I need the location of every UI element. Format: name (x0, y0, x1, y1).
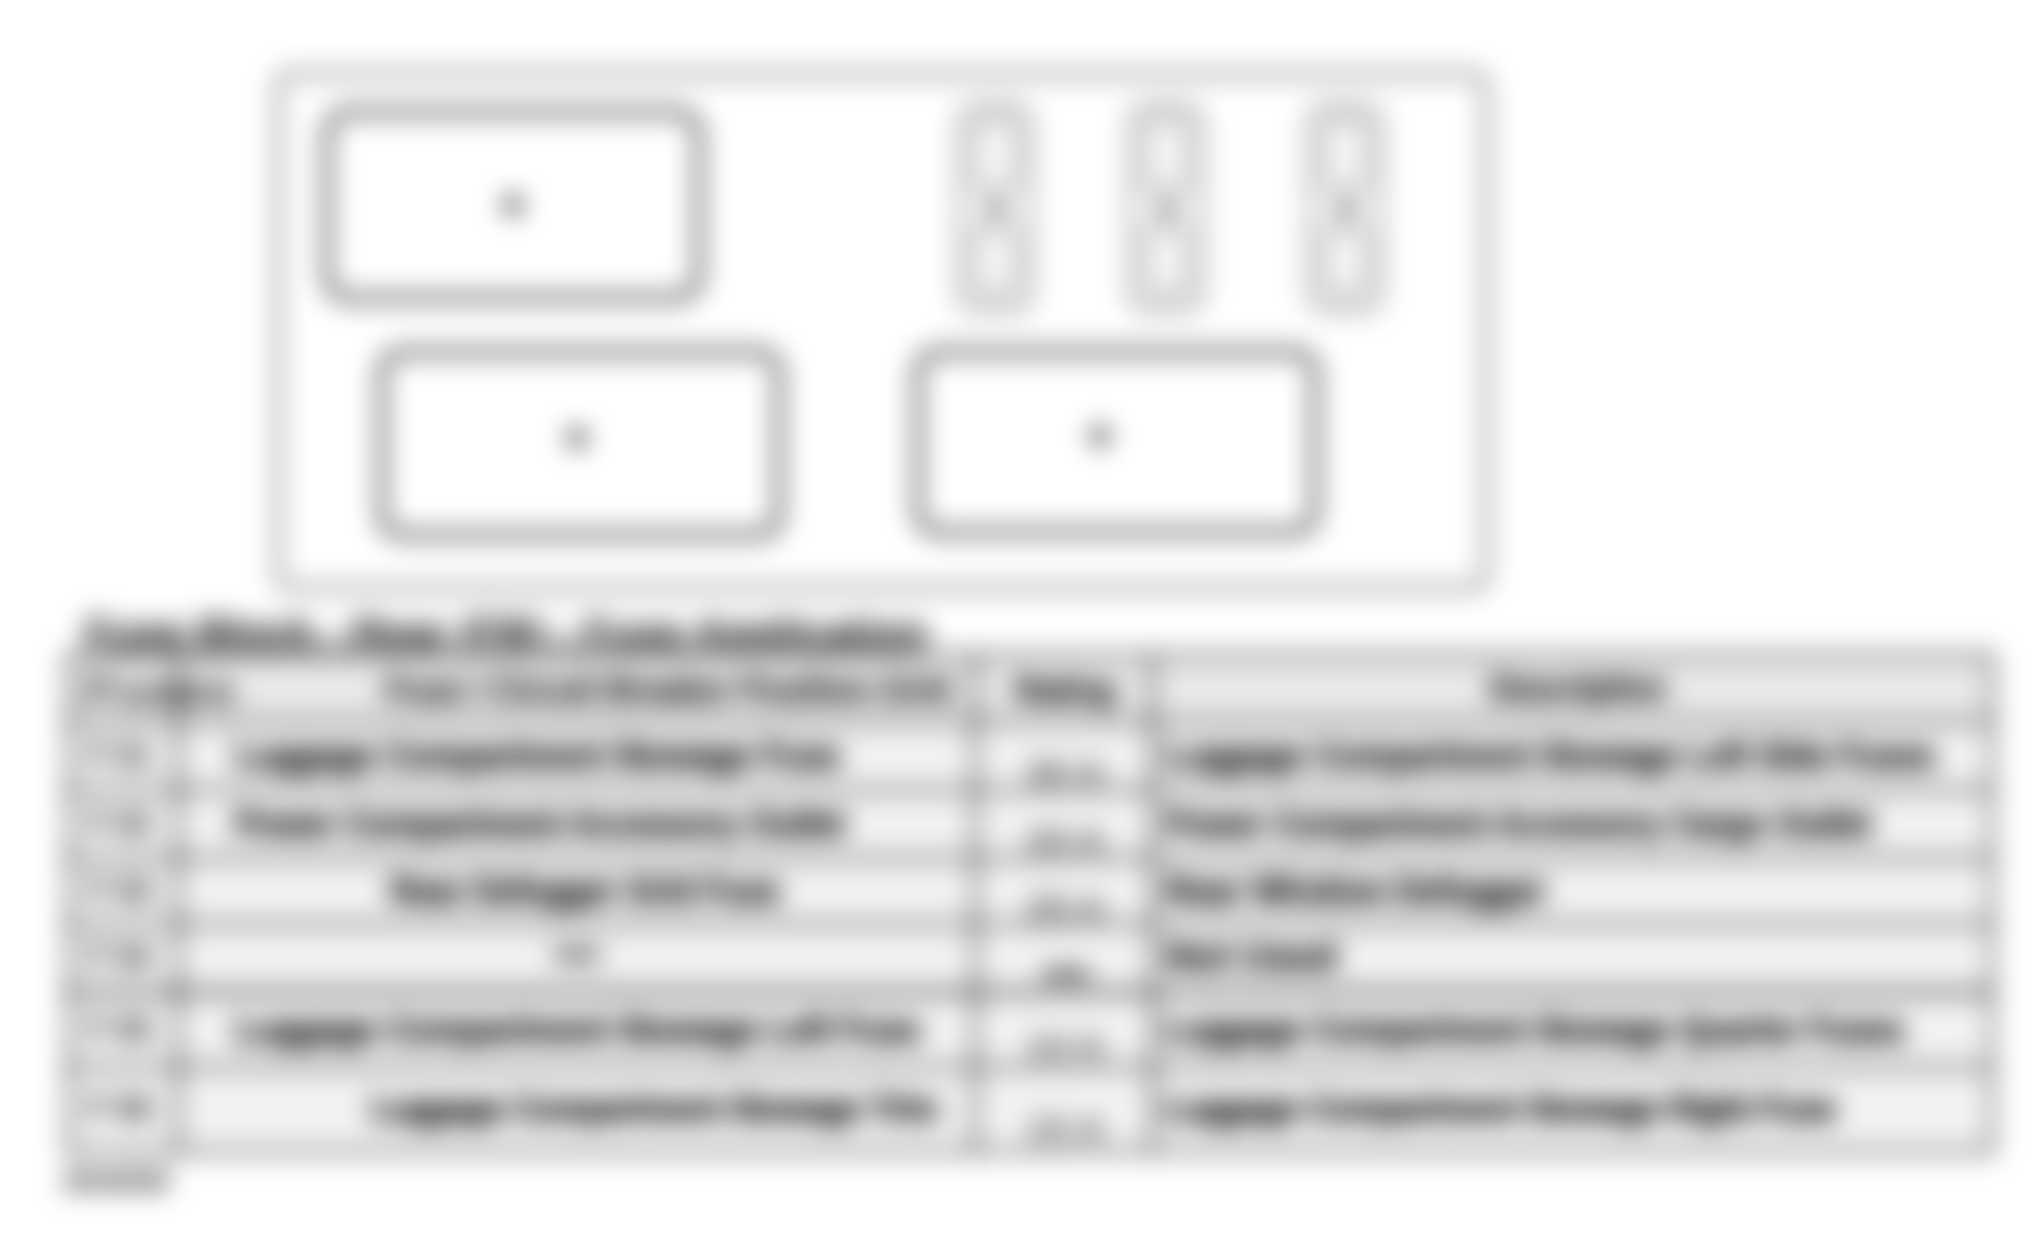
svg-text:F 61: F 61 (88, 737, 152, 773)
svg-text:F 62: F 62 (88, 805, 152, 841)
svg-text:10 A: 10 A (1026, 1029, 1105, 1065)
svg-text:Rear Window Defogger: Rear Window Defogger (1165, 872, 1546, 910)
svg-text:Rating: Rating (1015, 672, 1115, 708)
svg-text:Description: Description (1490, 670, 1666, 706)
svg-text:Not Used: Not Used (1165, 938, 1337, 976)
svg-text:20 A: 20 A (1026, 823, 1105, 859)
svg-text:Fuses: Fuses (85, 672, 235, 711)
svg-text:15 A: 15 A (1026, 1111, 1105, 1147)
svg-text:25 A: 25 A (1026, 890, 1105, 926)
svg-text:Luggage Compartment Stowage Ri: Luggage Compartment Stowage Right Fuse (1165, 1090, 1836, 1128)
svg-text:Power Compartment Accessory Ou: Power Compartment Accessory Outlet (235, 805, 845, 843)
svg-text:F 63: F 63 (88, 872, 152, 908)
svg-text:Fuse Block - Rear (FB) - Fuse: Fuse Block - Rear (FB) - Fuse Applicatio… (85, 611, 928, 653)
svg-text:F 65: F 65 (88, 1011, 152, 1047)
svg-text:Luggage Compartment Stowage Tr: Luggage Compartment Stowage Trim (371, 1090, 938, 1128)
svg-text:Fuse / Circuit Breaker Positio: Fuse / Circuit Breaker Position Grid (385, 671, 950, 709)
svg-text:Luggage Compartment Stowage Fu: Luggage Compartment Stowage Fuse (235, 737, 840, 775)
svg-text:Luggage Compartment Stowage Qu: Luggage Compartment Stowage Quarter Fuse… (1165, 1011, 1904, 1049)
svg-text:Power Compartment Accessory Ca: Power Compartment Accessory Cargo Outlet (1165, 805, 1871, 843)
svg-text:25242526: 25242526 (63, 1168, 169, 1195)
svg-text:30 A: 30 A (1026, 755, 1105, 791)
svg-text:Rear Defogger Grid Fuse: Rear Defogger Grid Fuse (390, 872, 780, 910)
svg-text:Luggage Compartment Stowage Le: Luggage Compartment Stowage Left Side Fu… (1165, 737, 1935, 775)
svg-text:F 66: F 66 (88, 1090, 152, 1126)
svg-text:F 64: F 64 (88, 938, 152, 974)
svg-text:Luggage Compartment Stowage Le: Luggage Compartment Stowage Left Fuse (235, 1011, 920, 1049)
